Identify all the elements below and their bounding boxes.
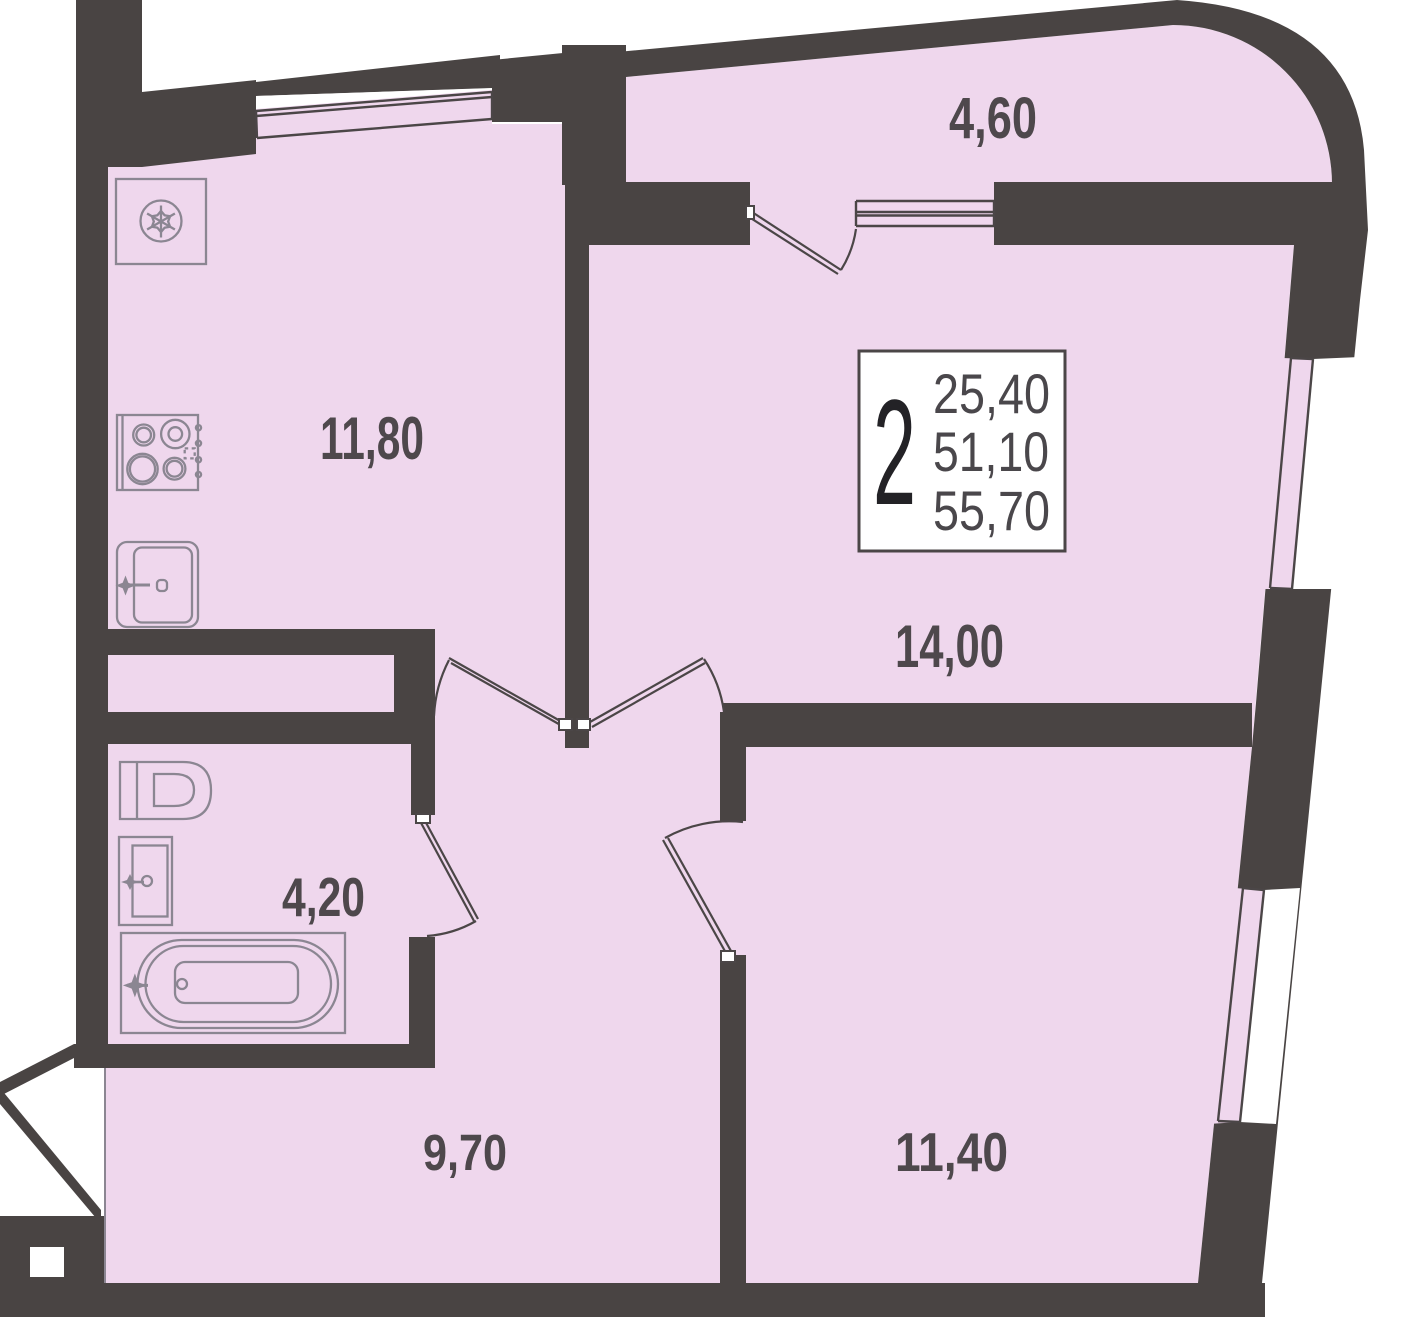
svg-text:51,10: 51,10 [933, 420, 1049, 483]
svg-text:2: 2 [873, 368, 916, 536]
svg-text:4,20: 4,20 [282, 866, 365, 928]
svg-text:9,70: 9,70 [423, 1124, 507, 1181]
svg-text:25,40: 25,40 [933, 362, 1050, 425]
svg-text:14,00: 14,00 [895, 613, 1004, 680]
svg-text:55,70: 55,70 [933, 479, 1050, 542]
svg-text:11,80: 11,80 [320, 405, 424, 472]
svg-text:4,60: 4,60 [949, 86, 1037, 151]
svg-text:11,40: 11,40 [895, 1121, 1008, 1183]
